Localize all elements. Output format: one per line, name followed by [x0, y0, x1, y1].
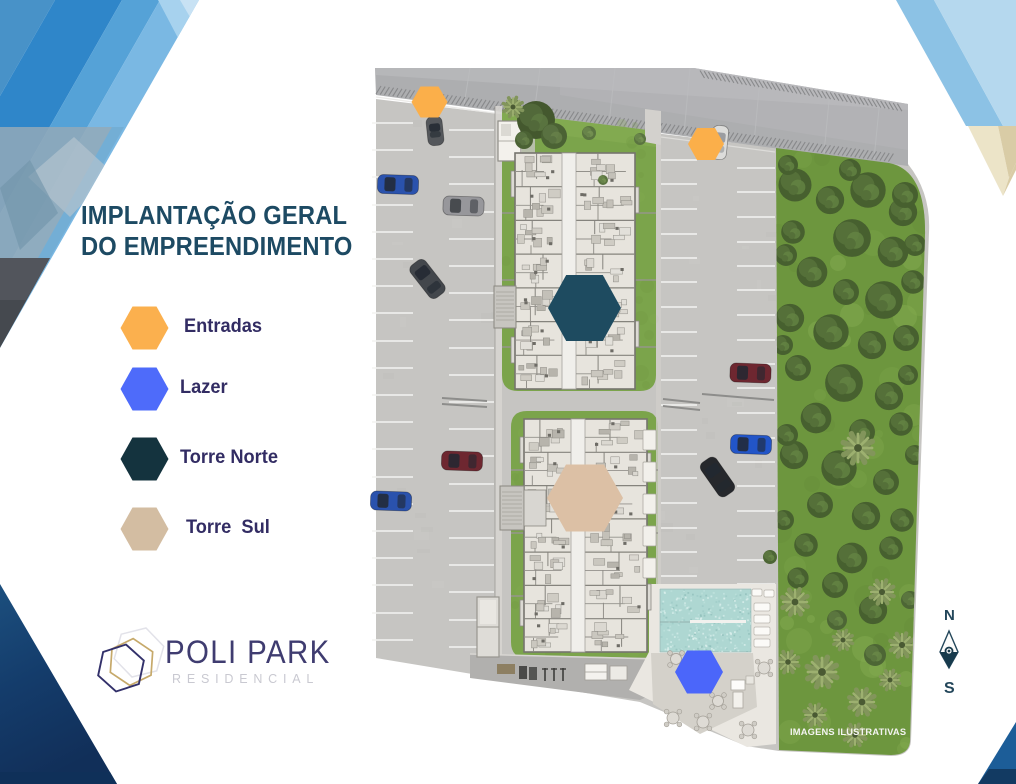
svg-text:IMAGENS ILUSTRATIVAS: IMAGENS ILUSTRATIVAS: [790, 727, 906, 737]
svg-text:N: N: [944, 607, 955, 624]
svg-text:S: S: [944, 680, 955, 697]
